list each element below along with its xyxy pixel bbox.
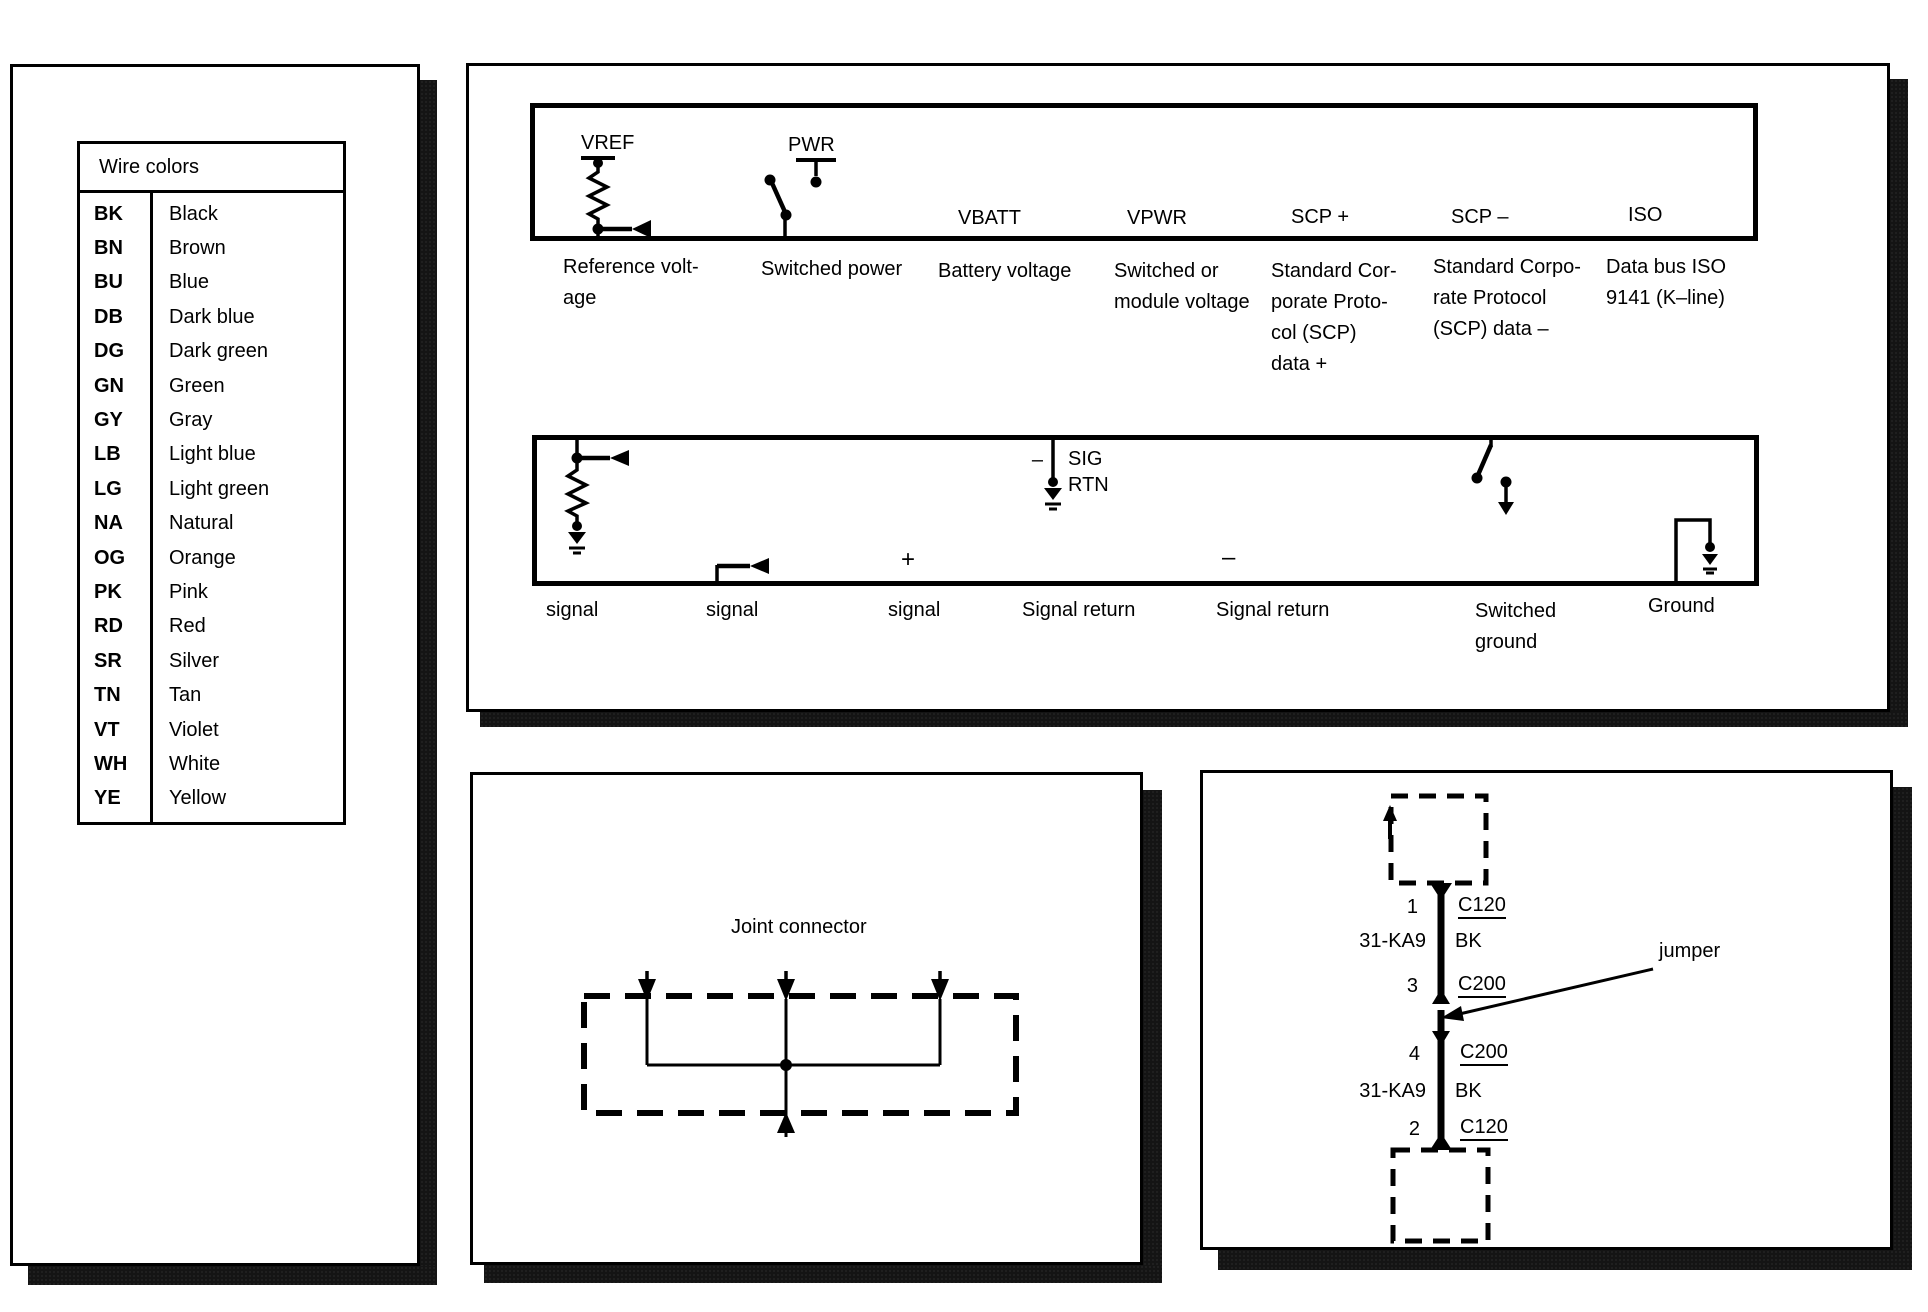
table-row: OGOrange xyxy=(80,541,343,575)
jumper-panel-shadow-bottom xyxy=(1218,1250,1912,1270)
jumper-top-dashed-box xyxy=(1391,796,1486,883)
wire-name: Tan xyxy=(147,684,201,707)
plus-sign: + xyxy=(901,548,915,572)
ground-symbol xyxy=(1676,520,1718,583)
left-panel-shadow xyxy=(420,80,437,1285)
wire-name: Brown xyxy=(147,237,226,260)
table-row: YEYellow xyxy=(80,782,343,816)
connector-label: C120 xyxy=(1458,894,1506,919)
symbol-desc-iso: Data bus ISO 9141 (K–line) xyxy=(1606,252,1726,314)
symbol-desc-vpwr: Switched or module voltage xyxy=(1114,256,1250,318)
connector-c120-top: C120 xyxy=(1458,893,1506,917)
signal-stub-arrow-symbol xyxy=(717,558,769,584)
wire-colors-divider xyxy=(150,190,153,822)
wire-entry-arrow-bottom xyxy=(1430,1133,1452,1150)
signal-resistor-ground-symbol xyxy=(568,439,629,553)
rtn-label: RTN xyxy=(1068,473,1109,497)
wire-code: TN xyxy=(80,684,147,707)
table-row: LGLight green xyxy=(80,472,343,506)
table-row: DGDark green xyxy=(80,335,343,369)
wire-colors-panel: Wire colors BKBlack BNBrown BUBlue DBDar… xyxy=(10,64,420,1266)
wire-name: Blue xyxy=(147,271,209,294)
signal-caption-1: signal xyxy=(546,598,598,622)
wire-name: Silver xyxy=(147,650,219,673)
pin-number-4: 4 xyxy=(1380,1042,1420,1066)
connector-label: C120 xyxy=(1460,1116,1508,1141)
wire-code: BK xyxy=(80,203,147,226)
symbol-label-scp-minus: SCP – xyxy=(1451,205,1508,229)
wire-code: SR xyxy=(80,650,147,673)
wire-code: BU xyxy=(80,271,147,294)
joint-connector-dashed-box xyxy=(584,996,1016,1113)
connector-c200-top: C200 xyxy=(1458,972,1506,996)
vref-symbol xyxy=(581,158,651,238)
signal-caption-3: signal xyxy=(888,598,940,622)
wire-colors-rows: BKBlack BNBrown BUBlue DBDark blue DGDar… xyxy=(80,193,343,822)
table-row: GNGreen xyxy=(80,369,343,403)
wire-name: Violet xyxy=(147,719,219,742)
connector-c120-bottom: C120 xyxy=(1460,1115,1508,1139)
table-row: RDRed xyxy=(80,610,343,644)
symbol-desc-vref: Reference volt- age xyxy=(563,252,699,314)
jumper-annotation: jumper xyxy=(1659,939,1720,963)
jumper-example-panel: 1 C120 31-KA9 BK 3 C200 jumper 4 C200 31… xyxy=(1200,770,1893,1250)
wire-name: Dark green xyxy=(147,340,268,363)
pin-number-3: 3 xyxy=(1378,974,1418,998)
symbol-desc-pwr: Switched power xyxy=(761,254,902,285)
wire-colors-title: Wire colors xyxy=(80,144,343,193)
wire-name: Gray xyxy=(147,409,212,432)
table-row: LBLight blue xyxy=(80,438,343,472)
wire-name: Pink xyxy=(147,581,208,604)
sig-label: SIG xyxy=(1068,447,1102,471)
table-row: NANatural xyxy=(80,507,343,541)
symbol-desc-vbatt: Battery voltage xyxy=(938,256,1071,287)
switched-ground-caption: Switched ground xyxy=(1475,596,1556,658)
wire-code: GN xyxy=(80,375,147,398)
wire-name: Dark blue xyxy=(147,306,255,329)
wire-code: DB xyxy=(80,306,147,329)
symbol-label-vbatt: VBATT xyxy=(958,206,1021,230)
joint-bus-lines xyxy=(647,999,940,1137)
signal-return-caption-2: Signal return xyxy=(1216,598,1329,622)
wire-name: Light blue xyxy=(147,443,256,466)
left-panel-shadow-bottom xyxy=(28,1266,437,1285)
top-box-up-arrow xyxy=(1383,805,1397,839)
table-row: BNBrown xyxy=(80,231,343,265)
pwr-switch-symbol xyxy=(765,160,837,238)
circuit-id-top: 31-KA9 xyxy=(1321,929,1426,953)
symbol-label-vref: VREF xyxy=(581,131,634,155)
wire-code: DG xyxy=(80,340,147,363)
scanned-legend-page: { "page": {"background": "#ffffff", "ink… xyxy=(0,0,1928,1312)
symbol-label-scp-plus: SCP + xyxy=(1291,205,1349,229)
wire-code: YE xyxy=(80,787,147,810)
connector-label: C200 xyxy=(1458,973,1506,998)
symbol-label-pwr: PWR xyxy=(788,133,835,157)
jumper-bottom-dashed-box xyxy=(1393,1150,1488,1241)
table-row: SRSilver xyxy=(80,644,343,678)
wire-code: RD xyxy=(80,615,147,638)
wire-name: White xyxy=(147,753,220,776)
signal-caption-2: signal xyxy=(706,598,758,622)
wire-color-top: BK xyxy=(1455,929,1482,953)
symbol-legend-panel: VREF PWR VBATT VPWR SCP + SCP – ISO Refe… xyxy=(466,63,1890,712)
wire-code: LG xyxy=(80,478,147,501)
table-row: PKPink xyxy=(80,575,343,609)
symbol-label-vpwr: VPWR xyxy=(1127,206,1187,230)
signal-return-caption-1: Signal return xyxy=(1022,598,1135,622)
wire-name: Green xyxy=(147,375,225,398)
symbol-label-iso: ISO xyxy=(1628,203,1662,227)
wire-name: Yellow xyxy=(147,787,226,810)
circuit-id-bottom: 31-KA9 xyxy=(1321,1079,1426,1103)
wire-name: Black xyxy=(147,203,218,226)
wire-colors-table: Wire colors BKBlack BNBrown BUBlue DBDar… xyxy=(77,141,346,825)
wire-code: WH xyxy=(80,753,147,776)
table-row: DBDark blue xyxy=(80,300,343,334)
table-row: VTViolet xyxy=(80,713,343,747)
pin-number-2: 2 xyxy=(1380,1117,1420,1141)
table-row: BKBlack xyxy=(80,197,343,231)
ground-caption: Ground xyxy=(1648,594,1715,618)
wire-code: BN xyxy=(80,237,147,260)
wire-name: Red xyxy=(147,615,206,638)
symbol-desc-scp-plus: Standard Cor- porate Proto- col (SCP) da… xyxy=(1271,256,1397,380)
symbol-desc-scp-minus: Standard Corpo- rate Protocol (SCP) data… xyxy=(1433,252,1581,345)
table-row: TNTan xyxy=(80,678,343,712)
connector-label: C200 xyxy=(1460,1041,1508,1066)
table-row: BUBlue xyxy=(80,266,343,300)
minus-sign-2: – xyxy=(1222,546,1235,570)
wire-name: Light green xyxy=(147,478,269,501)
joint-connector-panel: Joint connector xyxy=(470,772,1143,1265)
sig-minus-sign: – xyxy=(1009,448,1043,472)
wire-name: Natural xyxy=(147,512,233,535)
connector-c200-bottom: C200 xyxy=(1460,1040,1508,1064)
sig-rtn-ground-symbol xyxy=(1044,438,1062,509)
pin-number-1: 1 xyxy=(1378,895,1418,919)
wire-code: OG xyxy=(80,547,147,570)
wire-code: NA xyxy=(80,512,147,535)
wire-code: PK xyxy=(80,581,147,604)
jumper-example-art xyxy=(1203,773,1896,1253)
joint-connector-art xyxy=(473,775,1146,1268)
wire-code: LB xyxy=(80,443,147,466)
wire-code: VT xyxy=(80,719,147,742)
wire-name: Orange xyxy=(147,547,236,570)
table-row: WHWhite xyxy=(80,747,343,781)
wire-code: GY xyxy=(80,409,147,432)
wire-color-bottom: BK xyxy=(1455,1079,1482,1103)
switched-ground-symbol xyxy=(1472,438,1515,515)
table-row: GYGray xyxy=(80,403,343,437)
